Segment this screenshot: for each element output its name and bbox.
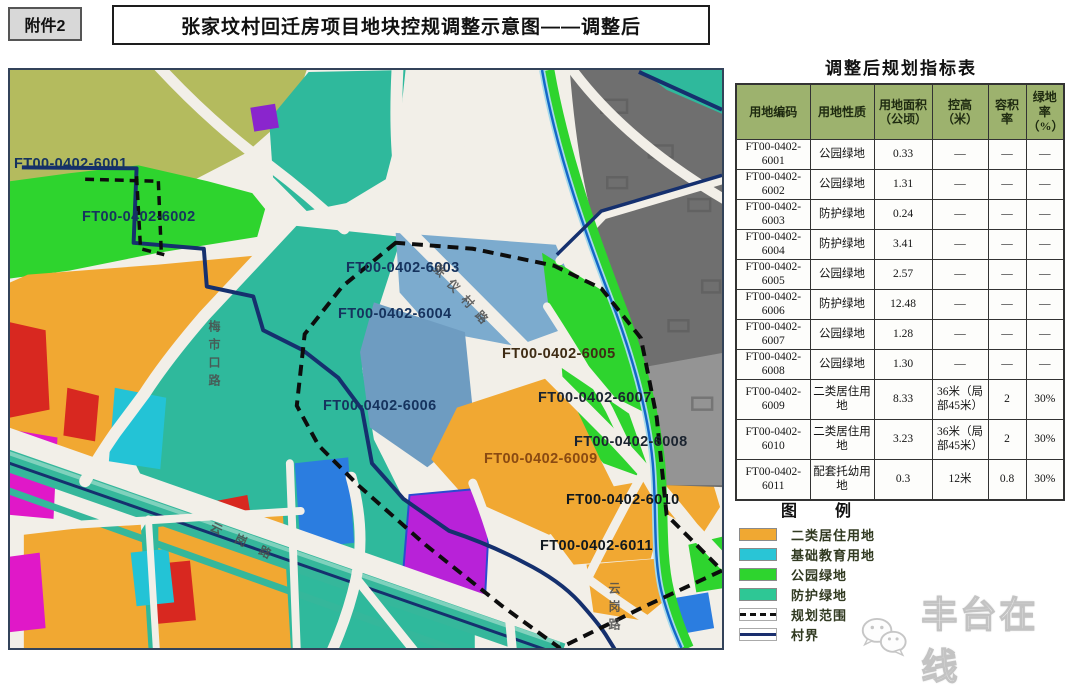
watermark: 丰台在线	[858, 586, 1070, 690]
cell-land-use: 公园绿地	[810, 140, 874, 170]
cell-far: —	[988, 350, 1026, 380]
cell-area: 3.41	[874, 230, 932, 260]
cell-area: 8.33	[874, 380, 932, 420]
cell-height: —	[932, 260, 988, 290]
cell-height: 12米	[932, 460, 988, 501]
table-row: FT00-0402-6008公园绿地1.30———	[736, 350, 1064, 380]
cell-land-use: 防护绿地	[810, 230, 874, 260]
protective-green-swatch	[739, 588, 777, 601]
cell-land-use: 公园绿地	[810, 170, 874, 200]
plot-label-6006: FT00-0402-6006	[323, 398, 437, 414]
table-row: FT00-0402-6006防护绿地12.48———	[736, 290, 1064, 320]
plot-label-6010: FT00-0402-6010	[566, 492, 680, 508]
cell-far: 0.8	[988, 460, 1026, 501]
plot-label-6002: FT00-0402-6002	[82, 209, 196, 225]
col-header-green-ratio: 绿地率（%）	[1026, 84, 1064, 140]
indicator-table: 用地编码 用地性质 用地面积（公顷） 控高（米） 容积率 绿地率（%） FT00…	[735, 83, 1065, 501]
cell-land-use: 二类居住用地	[810, 420, 874, 460]
table-row: FT00-0402-6003防护绿地0.24———	[736, 200, 1064, 230]
legend-title: 图 例	[781, 497, 1065, 521]
col-header-far: 容积率	[988, 84, 1026, 140]
cell-height: —	[932, 320, 988, 350]
cell-area: 0.24	[874, 200, 932, 230]
cell-land-use: 防护绿地	[810, 290, 874, 320]
table-row: FT00-0402-6002公园绿地1.31———	[736, 170, 1064, 200]
cell-far: 2	[988, 420, 1026, 460]
cell-green: —	[1026, 320, 1064, 350]
indicator-panel: 调整后规划指标表 用地编码 用地性质 用地面积（公顷） 控高（米） 容积率 绿地…	[735, 54, 1067, 501]
education-swatch	[739, 548, 777, 561]
cell-height: —	[932, 230, 988, 260]
cell-height: —	[932, 170, 988, 200]
cell-land-use: 公园绿地	[810, 350, 874, 380]
table-row: FT00-0402-6010二类居住用地3.2336米（局部45米）230%	[736, 420, 1064, 460]
road-label-meishikou: 梅市口路	[206, 320, 223, 430]
cell-land-code: FT00-0402-6011	[736, 460, 810, 501]
park-green-swatch	[739, 568, 777, 581]
cell-height: 36米（局部45米）	[932, 380, 988, 420]
cell-far: —	[988, 260, 1026, 290]
page-title: 张家坟村回迁房项目地块控规调整示意图——调整后	[181, 12, 641, 39]
cell-land-code: FT00-0402-6005	[736, 260, 810, 290]
document-title-box: 张家坟村回迁房项目地块控规调整示意图——调整后	[112, 5, 710, 45]
cell-area: 12.48	[874, 290, 932, 320]
table-row: FT00-0402-6004防护绿地3.41———	[736, 230, 1064, 260]
cell-area: 0.33	[874, 140, 932, 170]
cell-land-code: FT00-0402-6008	[736, 350, 810, 380]
cell-far: —	[988, 170, 1026, 200]
scanned-planning-document: { "page": { "attachment_label": "附件2", "…	[0, 0, 1070, 654]
cell-land-use: 二类居住用地	[810, 380, 874, 420]
cell-land-use: 配套托幼用地	[810, 460, 874, 501]
attachment-label: 附件2	[25, 12, 66, 36]
cell-height: —	[932, 350, 988, 380]
legend-label: 公园绿地	[791, 565, 847, 584]
cell-land-code: FT00-0402-6001	[736, 140, 810, 170]
cell-far: —	[988, 230, 1026, 260]
col-header-height-limit: 控高（米）	[932, 84, 988, 140]
cell-land-code: FT00-0402-6002	[736, 170, 810, 200]
cell-green: —	[1026, 230, 1064, 260]
cell-land-code: FT00-0402-6007	[736, 320, 810, 350]
cell-land-use: 公园绿地	[810, 260, 874, 290]
cell-land-use: 公园绿地	[810, 320, 874, 350]
plot-label-6005: FT00-0402-6005	[502, 346, 616, 362]
residential-swatch	[739, 528, 777, 541]
road-label-yungang-2: 云岗路	[606, 582, 623, 652]
cell-far: 2	[988, 380, 1026, 420]
col-header-land-code: 用地编码	[736, 84, 810, 140]
cell-far: —	[988, 200, 1026, 230]
attachment-label-box: 附件2	[8, 7, 82, 41]
plot-label-6004: FT00-0402-6004	[338, 306, 452, 322]
table-title: 调整后规划指标表	[735, 54, 1067, 79]
legend-item-residential: 二类居住用地	[739, 527, 1065, 541]
cell-land-use: 防护绿地	[810, 200, 874, 230]
village-boundary-swatch	[739, 628, 777, 641]
cell-area: 1.28	[874, 320, 932, 350]
table-header-row: 用地编码 用地性质 用地面积（公顷） 控高（米） 容积率 绿地率（%）	[736, 84, 1064, 140]
watermark-text: 丰台在线	[921, 586, 1070, 690]
legend-item-park-green: 公园绿地	[739, 567, 1065, 581]
cell-green: —	[1026, 260, 1064, 290]
cell-height: 36米（局部45米）	[932, 420, 988, 460]
cell-far: —	[988, 290, 1026, 320]
legend-label: 防护绿地	[791, 585, 847, 604]
col-header-land-use: 用地性质	[810, 84, 874, 140]
cell-green: —	[1026, 290, 1064, 320]
cell-green: —	[1026, 170, 1064, 200]
cell-height: —	[932, 140, 988, 170]
legend-label: 规划范围	[791, 605, 847, 624]
cell-land-code: FT00-0402-6010	[736, 420, 810, 460]
cell-green: 30%	[1026, 420, 1064, 460]
planning-scope-swatch	[739, 608, 777, 621]
plot-label-6008: FT00-0402-6008	[574, 434, 688, 450]
legend-label: 村界	[791, 625, 819, 644]
cell-green: —	[1026, 350, 1064, 380]
cell-area: 3.23	[874, 420, 932, 460]
cell-area: 0.3	[874, 460, 932, 501]
cell-land-code: FT00-0402-6004	[736, 230, 810, 260]
cell-area: 1.31	[874, 170, 932, 200]
legend-label: 二类居住用地	[791, 525, 875, 544]
cell-land-code: FT00-0402-6006	[736, 290, 810, 320]
cell-area: 1.30	[874, 350, 932, 380]
table-row: FT00-0402-6001公园绿地0.33———	[736, 140, 1064, 170]
legend-label: 基础教育用地	[791, 545, 875, 564]
col-header-area: 用地面积（公顷）	[874, 84, 932, 140]
planning-map: FT00-0402-6001 FT00-0402-6002 FT00-0402-…	[8, 68, 724, 650]
cell-height: —	[932, 290, 988, 320]
table-row: FT00-0402-6007公园绿地1.28———	[736, 320, 1064, 350]
cell-green: 30%	[1026, 460, 1064, 501]
cell-land-code: FT00-0402-6009	[736, 380, 810, 420]
plot-label-6011: FT00-0402-6011	[540, 538, 653, 554]
cell-far: —	[988, 140, 1026, 170]
cell-green: 30%	[1026, 380, 1064, 420]
plot-label-6009: FT00-0402-6009	[484, 451, 598, 467]
wechat-icon	[858, 614, 911, 662]
cell-green: —	[1026, 200, 1064, 230]
cell-green: —	[1026, 140, 1064, 170]
cell-height: —	[932, 200, 988, 230]
legend-item-education: 基础教育用地	[739, 547, 1065, 561]
table-row: FT00-0402-6011配套托幼用地0.312米0.830%	[736, 460, 1064, 501]
cell-area: 2.57	[874, 260, 932, 290]
plot-label-6001: FT00-0402-6001	[14, 156, 128, 172]
table-row: FT00-0402-6009二类居住用地8.3336米（局部45米）230%	[736, 380, 1064, 420]
cell-far: —	[988, 320, 1026, 350]
plot-label-6007: FT00-0402-6007	[538, 390, 652, 406]
table-row: FT00-0402-6005公园绿地2.57———	[736, 260, 1064, 290]
cell-land-code: FT00-0402-6003	[736, 200, 810, 230]
